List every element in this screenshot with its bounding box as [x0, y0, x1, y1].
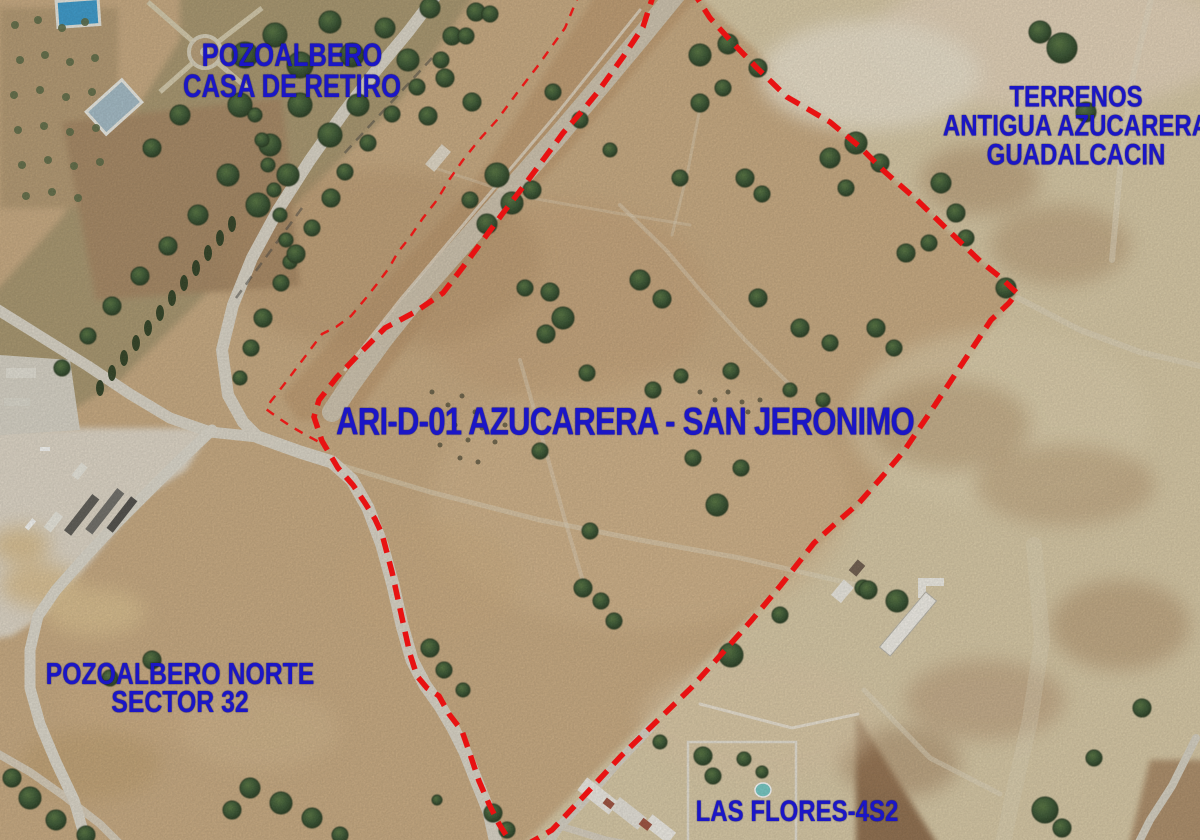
label-terrenos-antigua-azucarera: TERRENOS ANTIGUA AZUCARERA GUADALCACIN [943, 83, 1200, 170]
label-ari-d-01-azucarera-san-jeronimo: ARI-D-01 AZUCARERA - SAN JERONIMO [336, 403, 914, 442]
label-line: LAS FLORES-4S2 [696, 797, 899, 827]
label-line: TERRENOS [943, 83, 1200, 112]
label-line: CASA DE RETIRO [183, 71, 401, 102]
label-line: ANTIGUA AZUCARERA [943, 112, 1200, 141]
label-line: GUADALCACIN [943, 141, 1200, 170]
label-las-flores-4s2: LAS FLORES-4S2 [696, 797, 899, 827]
label-pozoalbero-norte-sector-32: POZOALBERO NORTE SECTOR 32 [46, 660, 315, 716]
label-line: ARI-D-01 AZUCARERA - SAN JERONIMO [336, 403, 914, 442]
label-pozoalbero-casa-de-retiro: POZOALBERO CASA DE RETIRO [183, 40, 401, 102]
label-line: SECTOR 32 [46, 688, 315, 716]
aerial-map: POZOALBERO CASA DE RETIRO TERRENOS ANTIG… [0, 0, 1200, 840]
label-line: POZOALBERO [183, 40, 401, 71]
